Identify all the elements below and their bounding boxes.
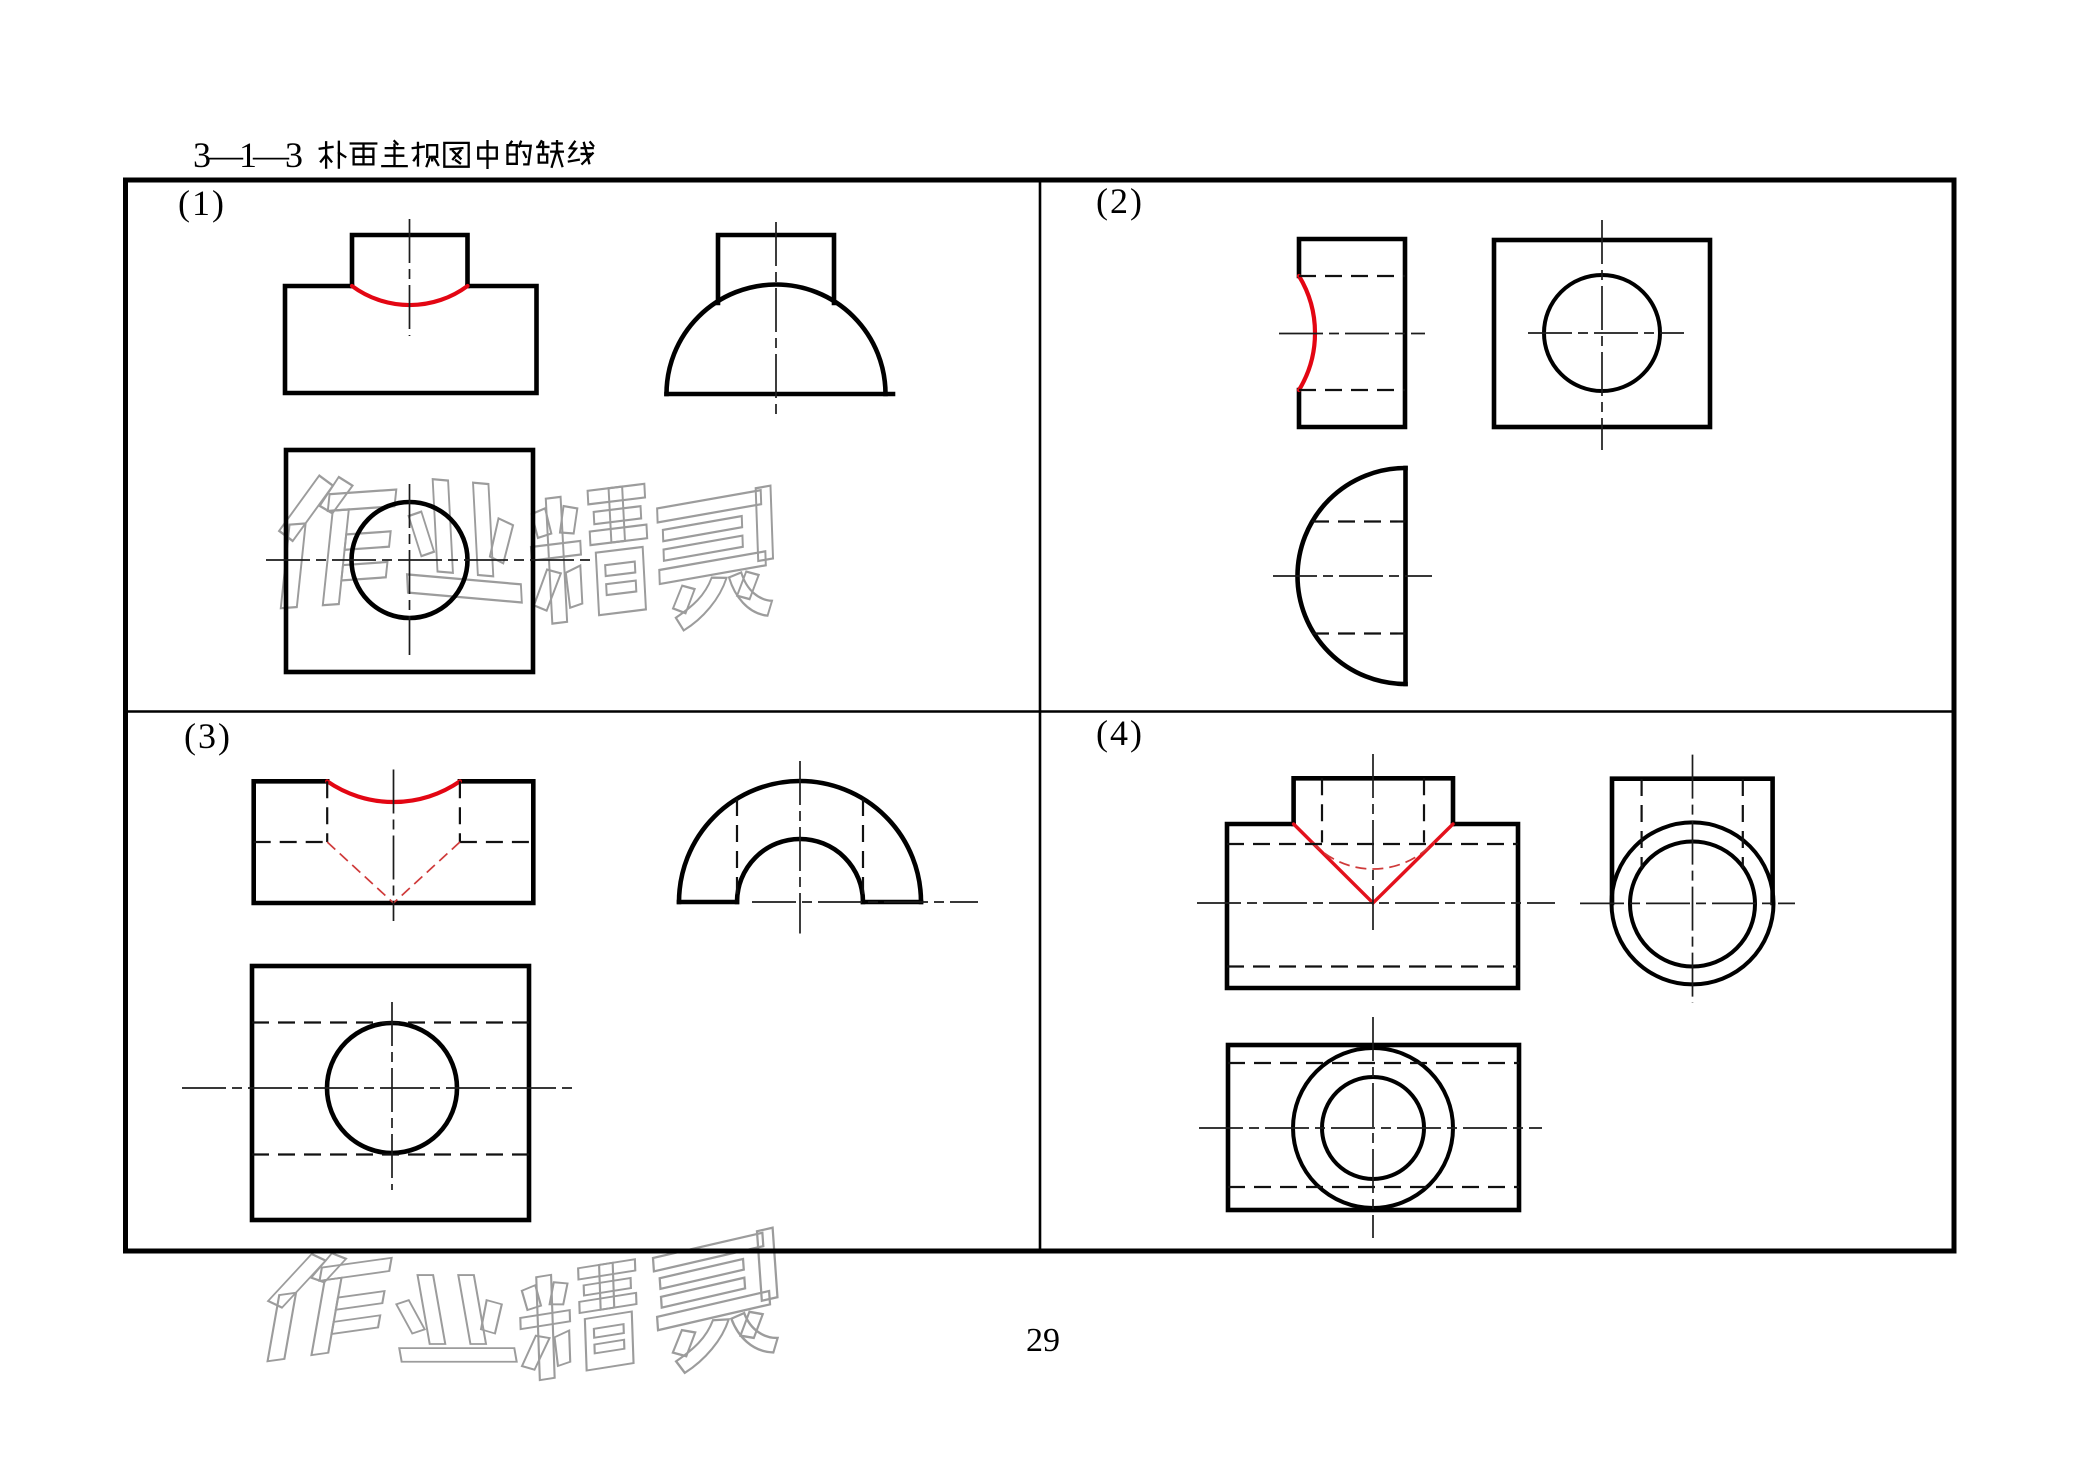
svg-text:3—1—3: 3—1—3 — [193, 135, 302, 175]
svg-text:(1): (1) — [178, 183, 226, 223]
svg-text:29: 29 — [1026, 1322, 1060, 1359]
svg-text:(2): (2) — [1096, 181, 1144, 221]
svg-text:(3): (3) — [184, 716, 232, 756]
svg-text:(4): (4) — [1096, 713, 1144, 753]
